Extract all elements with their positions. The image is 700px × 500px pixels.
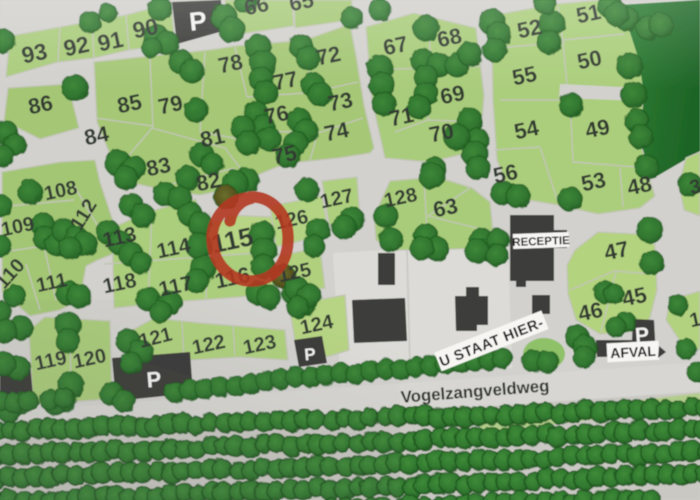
svg-text:76: 76	[262, 100, 291, 130]
svg-text:63: 63	[431, 193, 460, 223]
svg-text:70: 70	[427, 118, 456, 148]
svg-text:49: 49	[583, 114, 612, 144]
svg-text:45: 45	[620, 282, 649, 312]
svg-text:56: 56	[491, 159, 520, 189]
svg-text:79: 79	[156, 90, 185, 120]
svg-text:46: 46	[576, 297, 605, 327]
svg-text:81: 81	[198, 123, 227, 153]
svg-text:47: 47	[602, 236, 631, 266]
svg-text:73: 73	[326, 87, 355, 117]
svg-text:86: 86	[26, 90, 55, 120]
svg-text:48: 48	[625, 171, 654, 201]
svg-text:RECEPTIE: RECEPTIE	[512, 235, 570, 249]
svg-text:53: 53	[579, 167, 608, 197]
svg-text:82: 82	[194, 167, 223, 197]
svg-text:71: 71	[387, 102, 416, 132]
svg-text:83: 83	[144, 152, 173, 182]
svg-text:75: 75	[270, 140, 299, 170]
svg-text:85: 85	[115, 89, 144, 119]
svg-text:AFVAL: AFVAL	[610, 343, 657, 361]
